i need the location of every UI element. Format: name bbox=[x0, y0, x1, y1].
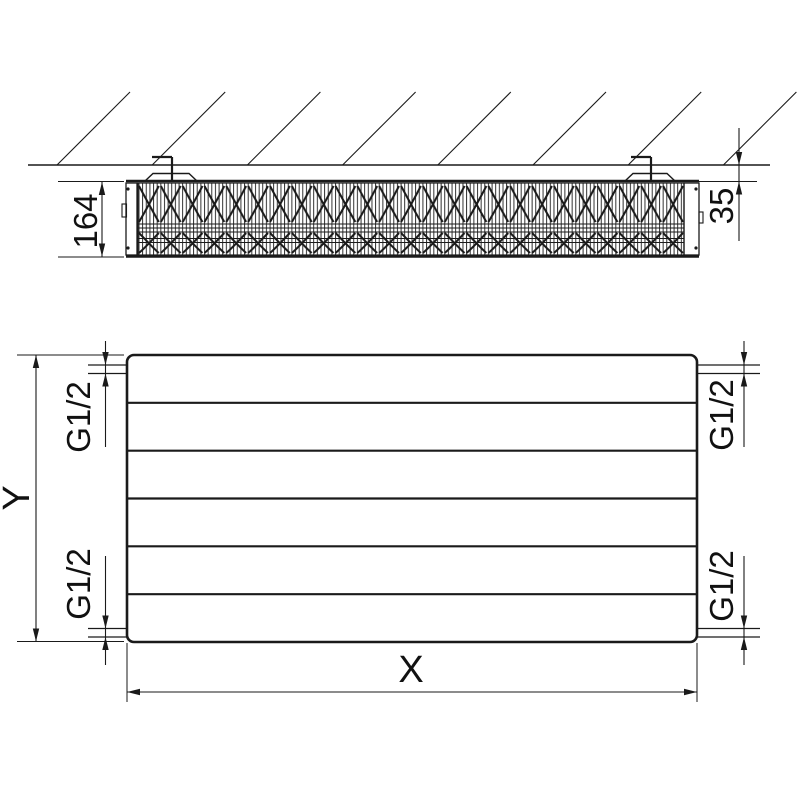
arrowhead-down bbox=[102, 616, 108, 629]
connection-label: G1/2 bbox=[703, 379, 740, 451]
top-view: 164 35 bbox=[28, 92, 796, 257]
hatch-line bbox=[57, 92, 130, 165]
arrowhead-up bbox=[33, 355, 39, 368]
screw-dot bbox=[126, 246, 129, 249]
arrowhead-down bbox=[33, 629, 39, 642]
arrowhead-down bbox=[741, 352, 747, 365]
hatch-line bbox=[247, 92, 320, 165]
connection-label: G1/2 bbox=[703, 550, 740, 622]
arrowhead-up bbox=[102, 637, 108, 650]
panel-groove-lines bbox=[128, 403, 696, 594]
hatch-line bbox=[343, 92, 416, 165]
arrowhead-down bbox=[102, 352, 108, 365]
hatch-line bbox=[438, 92, 511, 165]
front-view: G1/2 G1/2 G1/2 G1/2 bbox=[0, 341, 760, 702]
hatch-line bbox=[723, 92, 796, 165]
connection-stub-top-right bbox=[697, 365, 760, 374]
connection-stub-bottom-left bbox=[88, 629, 127, 638]
connection-label: G1/2 bbox=[60, 381, 97, 453]
dimension-wall-distance: 35 bbox=[699, 128, 757, 241]
screw-dot bbox=[694, 246, 697, 249]
arrowhead-left bbox=[127, 689, 140, 695]
connection-stub-top-left bbox=[88, 365, 127, 374]
dimension-width: X bbox=[127, 643, 697, 702]
dimension-connection-bottom-left: G1/2 bbox=[60, 548, 109, 665]
dimension-connection-top-left: G1/2 bbox=[60, 341, 109, 453]
arrowhead-down bbox=[736, 152, 742, 165]
height-label: Y bbox=[0, 485, 38, 510]
convector-weave-overlay bbox=[138, 183, 684, 255]
depth-label: 164 bbox=[67, 193, 104, 248]
radiator-technical-drawing: 164 35 bbox=[0, 0, 800, 800]
radiator-right-end-cap bbox=[684, 183, 699, 255]
radiator-section bbox=[122, 181, 703, 257]
arrowhead-up bbox=[741, 637, 747, 650]
arrowhead-up bbox=[102, 374, 108, 387]
wall-hatching bbox=[57, 92, 796, 165]
dimension-depth: 164 bbox=[58, 182, 124, 258]
hatch-line bbox=[533, 92, 606, 165]
dimension-connection-bottom-right: G1/2 bbox=[703, 550, 747, 665]
hatch-line bbox=[152, 92, 225, 165]
screw-dot bbox=[126, 187, 129, 190]
mounting-bracket-left bbox=[145, 157, 197, 181]
arrowhead-up bbox=[99, 182, 105, 195]
hatch-line bbox=[628, 92, 701, 165]
arrowhead-right bbox=[684, 689, 697, 695]
radiator-left-end-cap bbox=[126, 183, 137, 255]
dimension-connection-top-right: G1/2 bbox=[703, 341, 747, 451]
arrowhead-down bbox=[741, 616, 747, 629]
arrowhead-up bbox=[741, 374, 747, 387]
connection-stub-bottom-right bbox=[697, 629, 760, 638]
screw-dot bbox=[694, 187, 697, 190]
width-label: X bbox=[398, 649, 423, 691]
wall-distance-label: 35 bbox=[703, 188, 740, 225]
connection-label: G1/2 bbox=[60, 548, 97, 620]
